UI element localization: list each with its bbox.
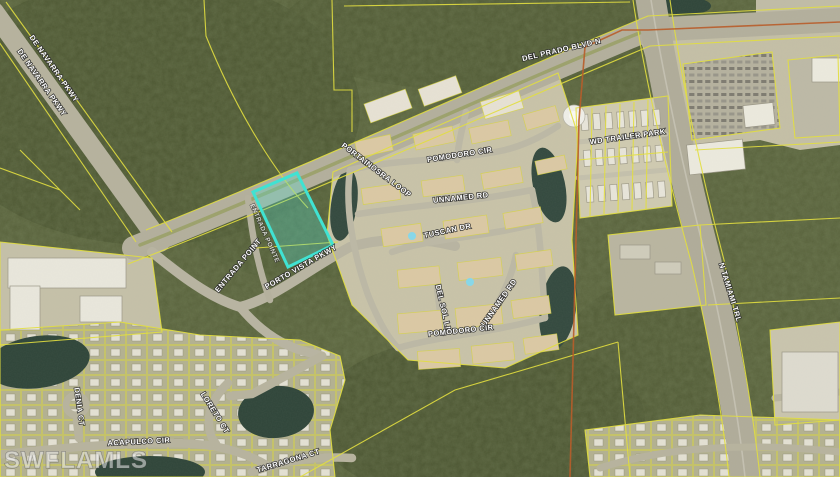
photo-grain-overlay <box>0 0 840 477</box>
map-canvas: DEL PRADO BLVD N DE NAVARRA PKWY DE NAVA… <box>0 0 840 477</box>
mls-watermark: SWFLAMLS <box>4 447 148 474</box>
aerial-parcel-map: DEL PRADO BLVD N DE NAVARRA PKWY DE NAVA… <box>0 0 840 477</box>
